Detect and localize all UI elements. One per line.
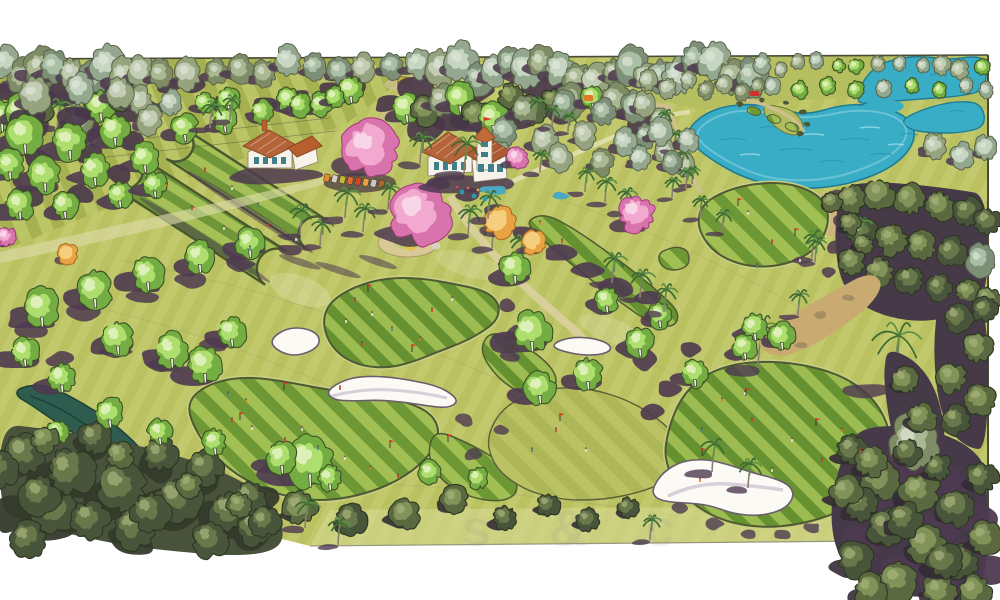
svg-text:s & c: s & c (462, 500, 696, 558)
